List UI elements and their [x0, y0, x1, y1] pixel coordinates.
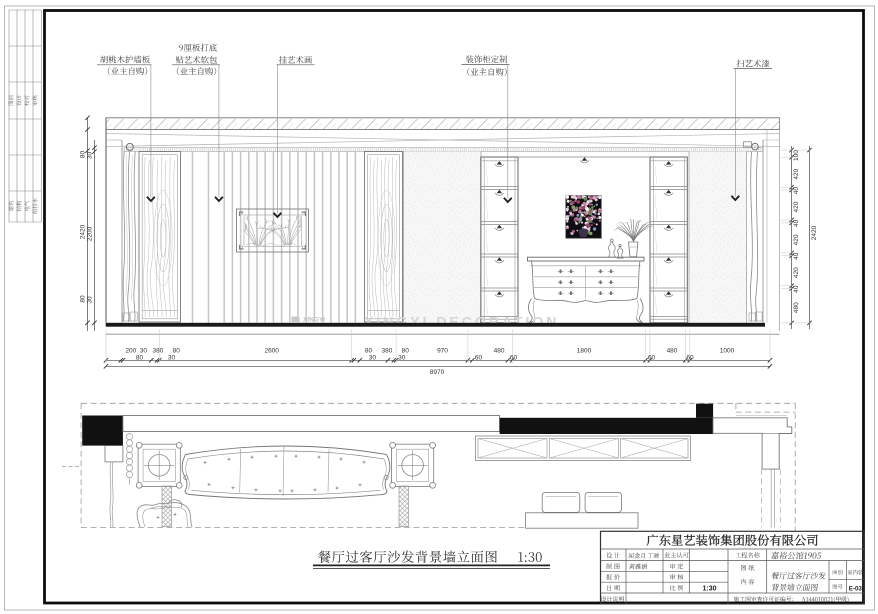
- svg-text:2420: 2420: [811, 225, 818, 240]
- svg-text:2600: 2600: [264, 348, 279, 355]
- svg-text:1:30: 1:30: [702, 586, 716, 593]
- svg-text:30: 30: [369, 354, 377, 361]
- svg-text:40: 40: [793, 252, 800, 260]
- svg-text:100: 100: [793, 150, 800, 161]
- svg-text:420: 420: [793, 234, 800, 245]
- svg-text:60: 60: [686, 354, 694, 361]
- svg-text:E-03: E-03: [849, 586, 863, 593]
- svg-text:XINGYI: XINGYI: [303, 317, 325, 324]
- svg-text:80: 80: [79, 151, 86, 159]
- svg-text:1000: 1000: [720, 348, 735, 355]
- svg-text:970: 970: [437, 348, 448, 355]
- svg-text:30: 30: [398, 354, 406, 361]
- svg-text:80: 80: [79, 295, 86, 303]
- svg-text:420: 420: [793, 267, 800, 278]
- svg-text:420: 420: [793, 201, 800, 212]
- svg-text:380: 380: [152, 348, 163, 355]
- svg-text:480: 480: [494, 348, 505, 355]
- svg-text:60: 60: [475, 354, 483, 361]
- svg-text:2200: 2200: [86, 226, 93, 241]
- svg-text:60: 60: [648, 354, 656, 361]
- svg-text:80: 80: [136, 354, 144, 361]
- svg-text:XINGYI DECORATION: XINGYI DECORATION: [364, 314, 559, 330]
- svg-text:40: 40: [793, 187, 800, 195]
- svg-text:380: 380: [381, 348, 392, 355]
- svg-text:30: 30: [86, 152, 93, 160]
- svg-text:30: 30: [168, 354, 176, 361]
- svg-text:8970: 8970: [430, 369, 445, 376]
- svg-text:480: 480: [667, 348, 678, 355]
- svg-text:480: 480: [793, 302, 800, 313]
- svg-text:30: 30: [86, 296, 93, 304]
- svg-text:2420: 2420: [79, 224, 86, 239]
- svg-text:40: 40: [793, 285, 800, 293]
- svg-text:420: 420: [793, 168, 800, 179]
- svg-text:40: 40: [793, 219, 800, 227]
- svg-text:1800: 1800: [577, 348, 592, 355]
- svg-text:60: 60: [510, 354, 518, 361]
